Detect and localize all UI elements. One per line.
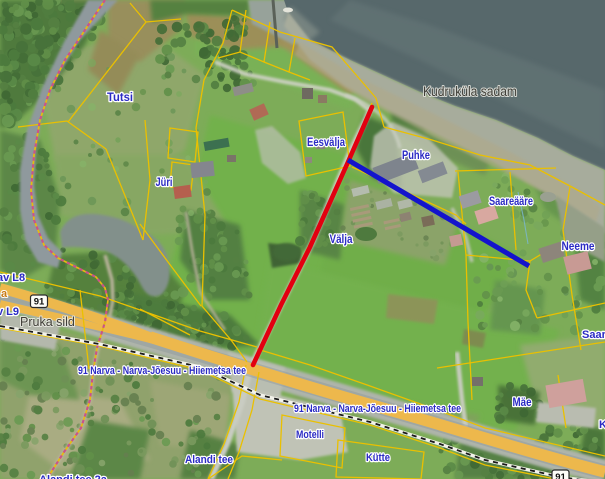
svg-text:Motelli: Motelli [296,429,324,441]
svg-text:Alandi tee 2a: Alandi tee 2a [39,474,108,479]
svg-text:v L9: v L9 [0,306,19,318]
svg-text:Neeme: Neeme [562,239,595,253]
svg-text:Kütte: Kütte [366,452,390,464]
svg-text:91: 91 [34,297,45,308]
svg-text:Kü: Kü [599,419,605,431]
svg-text:Eesvälja: Eesvälja [307,137,345,149]
svg-text:Puhke: Puhke [402,150,430,162]
svg-text:Saareääre: Saareääre [582,329,605,341]
svg-text:Pruka sild: Pruka sild [20,315,75,329]
svg-text:Tutsi: Tutsi [107,92,133,104]
svg-text:av L8: av L8 [0,272,25,284]
svg-text:91: 91 [555,472,566,479]
svg-text:a: a [1,288,8,300]
svg-text:Välja: Välja [330,234,354,246]
svg-text:Kudruküla sadam: Kudruküla sadam [423,84,517,99]
svg-text:Mäe: Mäe [513,397,532,409]
svg-text:Saareääre: Saareääre [489,196,533,208]
svg-text:91 Narva - Narva-Jõesuu - Hiie: 91 Narva - Narva-Jõesuu - Hiiemetsa tee [78,365,246,377]
svg-text:91 Narva - Narva-Jõesuu - Hiie: 91 Narva - Narva-Jõesuu - Hiiemetsa tee [294,403,461,415]
svg-text:Alandi tee: Alandi tee [185,454,233,466]
svg-text:Jüri: Jüri [156,177,173,189]
